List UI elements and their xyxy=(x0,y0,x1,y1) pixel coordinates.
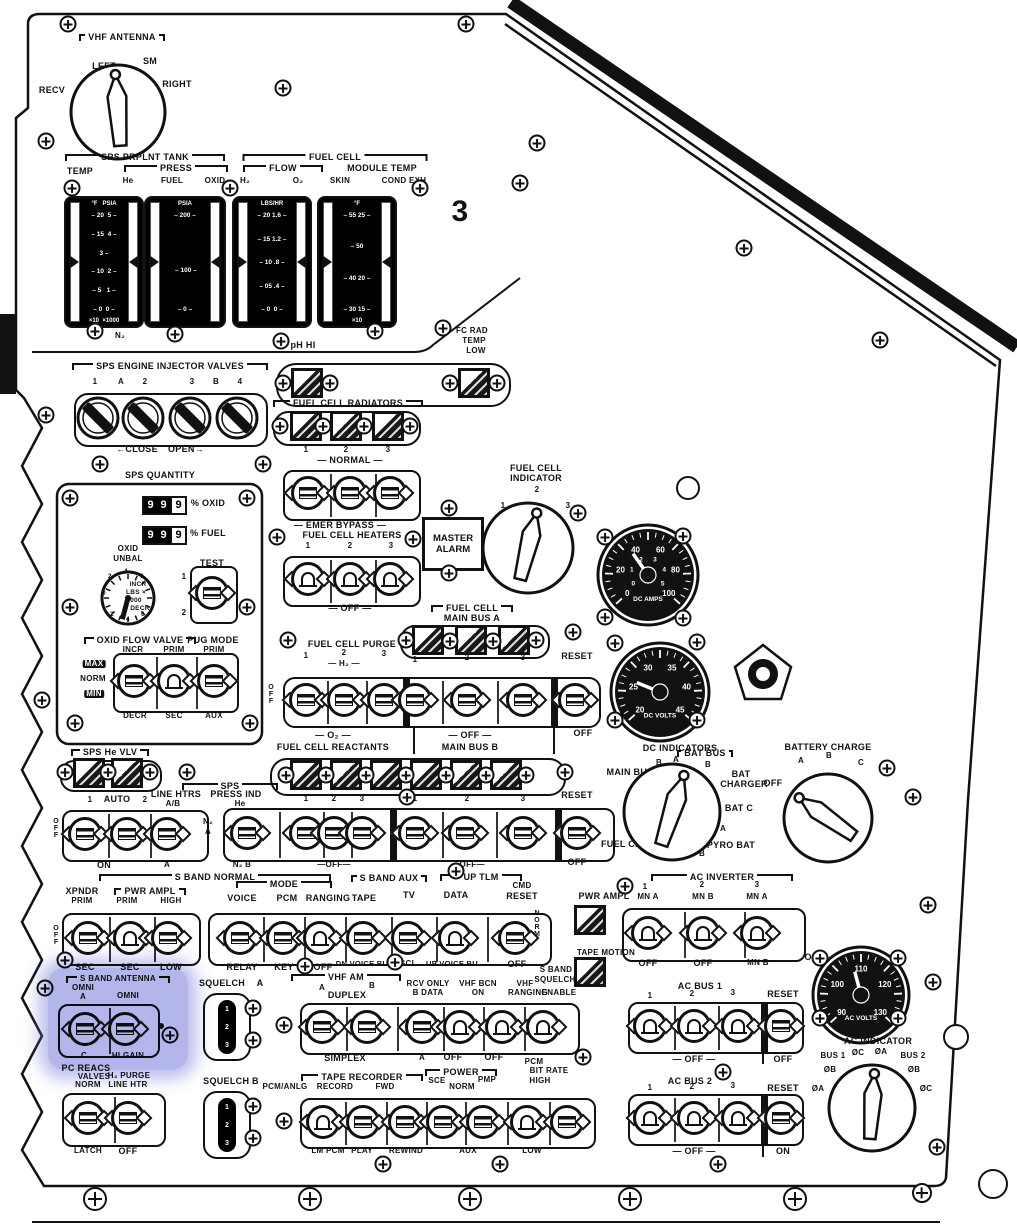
switch-lever xyxy=(458,694,476,706)
label: —OFF— xyxy=(317,861,351,869)
fc-htr-off-1[interactable] xyxy=(291,562,325,596)
screw-icon xyxy=(162,1027,179,1044)
sps-auto-2-switch[interactable] xyxy=(110,817,144,851)
label: 3 xyxy=(755,881,760,889)
pcm-bit-rate[interactable] xyxy=(510,1105,544,1139)
oxid-flow-prim-sec[interactable] xyxy=(157,664,191,698)
screw-icon xyxy=(239,490,256,507)
screw-icon xyxy=(570,505,587,522)
press-ind-reset[interactable] xyxy=(560,816,594,850)
vhf-ranging[interactable] xyxy=(485,1010,519,1044)
switch-lever xyxy=(354,932,372,944)
switch-lever xyxy=(453,1020,467,1033)
meter-tick-label: 40 xyxy=(682,682,691,691)
label: ON xyxy=(97,861,111,870)
screw-icon xyxy=(675,610,692,627)
screw-icon xyxy=(617,878,634,895)
switch-lever xyxy=(125,675,143,687)
line-htrs-ab-switch[interactable] xyxy=(150,817,184,851)
ac-bus1-1[interactable] xyxy=(633,1009,667,1043)
ac-bus2-3[interactable] xyxy=(721,1101,755,1135)
screw-icon xyxy=(100,764,117,781)
press-ind-b1[interactable] xyxy=(398,816,432,850)
vhf-am-b[interactable] xyxy=(350,1010,384,1044)
fc-htr-norm-2[interactable] xyxy=(333,476,367,510)
switch-lever xyxy=(119,1112,137,1124)
screw-icon xyxy=(297,958,314,975)
label: 1 xyxy=(304,652,309,660)
screw-icon xyxy=(405,531,422,548)
screw-icon xyxy=(398,767,415,784)
fuel-cell-indicator-selector[interactable] xyxy=(477,497,579,599)
switch-lever xyxy=(159,932,177,944)
screw-icon xyxy=(812,950,829,967)
label: — O₂ — xyxy=(315,731,351,740)
label: RESET xyxy=(561,791,593,800)
readout-digit: 9 xyxy=(144,528,157,543)
label: PMP xyxy=(478,1076,496,1084)
label: SKIN xyxy=(330,177,350,185)
ac-inv-3[interactable] xyxy=(740,916,774,950)
tape-scale: – 20 5 –– 15 4 –3 –– 10 2 –– 5 1 –– 0 0 … xyxy=(81,212,127,313)
screw-icon xyxy=(38,407,55,424)
s-band-antenna-a-c[interactable] xyxy=(68,1012,102,1046)
switch-lever xyxy=(381,487,399,499)
screw-icon xyxy=(618,1187,642,1211)
screw-icon xyxy=(57,952,74,969)
screw-icon xyxy=(67,715,84,732)
pwr-ampl-high-low[interactable] xyxy=(151,921,185,955)
label: 2 xyxy=(700,881,705,889)
screw-icon xyxy=(245,1032,262,1049)
label: 2 xyxy=(348,542,353,550)
meter-tick-label: 45 xyxy=(676,706,685,715)
label: BIT RATE xyxy=(530,1067,569,1075)
tape-scale-row: – 55 25 – xyxy=(334,212,380,219)
main-bus-a-1-talkback xyxy=(412,625,444,655)
screw-icon xyxy=(315,418,332,435)
tape-pointer xyxy=(322,255,339,269)
label: SEC xyxy=(120,963,139,972)
label: 6 xyxy=(141,612,145,619)
power-sce[interactable] xyxy=(426,1105,460,1139)
label: PRIM xyxy=(71,897,92,905)
label: 2 xyxy=(342,649,347,657)
switch-lever xyxy=(274,932,292,944)
label: S BAND xyxy=(540,966,572,974)
label: A xyxy=(118,378,124,386)
label: C xyxy=(81,1052,87,1060)
screw-icon xyxy=(402,418,419,435)
label: 2 xyxy=(690,990,695,998)
label: MN B xyxy=(747,959,769,967)
screw-icon xyxy=(34,692,51,709)
switch-lever xyxy=(203,587,221,599)
screw-icon xyxy=(890,1010,907,1027)
mode-ranging[interactable] xyxy=(303,921,337,955)
press-ind-b3[interactable] xyxy=(506,816,540,850)
switch-lever xyxy=(643,1111,657,1124)
label: 3 xyxy=(360,795,365,803)
quantity-test-switch[interactable] xyxy=(195,576,229,610)
screw-icon xyxy=(276,1017,293,1034)
switch-lever xyxy=(343,572,357,585)
screw-icon xyxy=(812,1010,829,1027)
screw-icon xyxy=(458,1187,482,1211)
screw-icon xyxy=(442,375,459,392)
label: 1 xyxy=(643,883,648,891)
up-tlm-data[interactable] xyxy=(438,921,472,955)
vhf-antenna-title: VHF ANTENNA xyxy=(79,33,165,42)
label: MODULE TEMP xyxy=(347,164,417,173)
h2-purge-line-htr[interactable] xyxy=(111,1101,145,1135)
readout-digit: 9 xyxy=(157,498,170,513)
label: RESET xyxy=(506,892,538,901)
dc-volts-meter: 202530354045DC VOLTS xyxy=(607,639,713,745)
screw-icon xyxy=(399,789,416,806)
tape-scale: – 55 25 –– 50– 40 20 –– 30 15 – xyxy=(334,212,380,313)
fc-purge-2[interactable] xyxy=(327,683,361,717)
tape-scale-row: – 5 1 – xyxy=(81,287,127,294)
label: 3 xyxy=(521,795,526,803)
label: 1 xyxy=(648,992,653,1000)
fuel-cell-module-temp-meter: °F– 55 25 –– 50– 40 20 –– 30 15 –×10 xyxy=(317,196,397,328)
switch-lever xyxy=(299,487,317,499)
tape-scale-row: 3 – xyxy=(81,250,127,257)
thumbwheel-drum: 123 xyxy=(218,1000,236,1054)
label: 2 xyxy=(143,378,148,386)
screw-icon xyxy=(276,1113,293,1130)
label: MAIN BUS B xyxy=(442,743,499,752)
label: 2 xyxy=(465,654,470,662)
label: NORM xyxy=(80,675,106,683)
ph-hi-talkback xyxy=(291,368,323,398)
fuel-cell-flow-meter: LBS/HR– 20 1.6 –– 15 1.2 –– 10 .8 –– 05 … xyxy=(232,196,312,328)
screw-icon xyxy=(879,760,896,777)
meter-tick-label: 100 xyxy=(831,980,845,989)
screw-icon xyxy=(715,1064,732,1081)
meter-tick-label: 60 xyxy=(656,545,665,554)
meter-inner-tick: 4 xyxy=(662,567,666,574)
label: 6 xyxy=(140,574,144,581)
sps-quantity-title: SPS QUANTITY xyxy=(125,471,195,480)
tape-pointer xyxy=(290,255,307,269)
sps-injector-title: SPS ENGINE INJECTOR VALVES xyxy=(72,362,268,371)
screw-icon xyxy=(367,323,384,340)
label: TAPE xyxy=(352,894,377,903)
injector-valve-2[interactable] xyxy=(120,395,166,441)
label: 1 xyxy=(93,378,98,386)
main-bus-b-3[interactable] xyxy=(506,683,540,717)
switch-lever xyxy=(448,931,462,944)
battery-charge-selector[interactable] xyxy=(778,768,878,868)
fc-purge-1[interactable] xyxy=(289,683,323,717)
label: MN A xyxy=(637,893,658,901)
screw-icon xyxy=(239,599,256,616)
press-ind-3[interactable] xyxy=(345,816,379,850)
oxid-flow-incr-decr[interactable] xyxy=(117,664,151,698)
tape-scale-row: – 40 20 – xyxy=(334,275,380,282)
main-bus-b-reset[interactable] xyxy=(558,683,592,717)
tape-scale-unit: LBS/HR xyxy=(248,201,296,207)
switch-lever xyxy=(297,694,315,706)
pwr-ampl-prim-sec[interactable] xyxy=(113,921,147,955)
screw-icon xyxy=(441,565,458,582)
label: TEMP xyxy=(67,167,93,176)
screw-icon xyxy=(387,954,404,971)
tape-pointer xyxy=(204,255,221,269)
screw-icon xyxy=(83,1187,107,1211)
switch-lever xyxy=(495,1020,509,1033)
label: DECR xyxy=(130,606,150,613)
screw-icon xyxy=(272,418,289,435)
switch-lever xyxy=(231,932,249,944)
tape-scale-row: – 50 xyxy=(334,243,380,250)
aux-tv[interactable] xyxy=(391,921,425,955)
ac-bus2-reset[interactable] xyxy=(764,1101,798,1135)
main-bus-b-2[interactable] xyxy=(450,683,484,717)
tape-scale-row: – 20 1.6 – xyxy=(249,212,295,219)
label: 3 xyxy=(731,989,736,997)
label: RECORD xyxy=(317,1083,353,1091)
screw-icon xyxy=(912,1183,932,1203)
readout-digit: 9 xyxy=(144,498,157,513)
tape-fwd[interactable] xyxy=(388,1105,422,1139)
pc-reacs-valves[interactable] xyxy=(71,1101,105,1135)
tape-pointer xyxy=(69,255,86,269)
fuel-quantity-readout: 999 xyxy=(142,526,187,545)
thumbwheel-digit: 3 xyxy=(225,1042,229,1049)
label: SEC xyxy=(165,712,182,720)
main-bus-b-1[interactable] xyxy=(398,683,432,717)
button-label: ALARM xyxy=(436,544,470,555)
label: FWD xyxy=(375,1083,394,1091)
label: 2 xyxy=(332,795,337,803)
injector-valve-4[interactable] xyxy=(214,395,260,441)
meter-tick-label: 30 xyxy=(644,663,653,672)
label: LOW xyxy=(160,963,182,972)
screw-icon xyxy=(736,240,753,257)
screw-icon xyxy=(222,180,239,197)
screw-icon xyxy=(492,1156,509,1173)
s-band-squelch[interactable] xyxy=(526,1010,560,1044)
meter-inner-tick: 0 xyxy=(631,581,635,588)
press-ind-b2[interactable] xyxy=(448,816,482,850)
switch-lever xyxy=(406,694,424,706)
screw-icon xyxy=(485,633,502,650)
label: HIGH xyxy=(160,897,181,905)
switch-lever xyxy=(566,694,584,706)
label: MAX xyxy=(83,660,106,668)
tape-scale: – 200 – – 100 –– 0 – xyxy=(161,212,209,313)
label: PRIM xyxy=(116,897,137,905)
tape-scale-multiplier: ×10 ×1000 xyxy=(80,318,128,324)
switch-lever xyxy=(335,694,353,706)
vhf-am-a[interactable] xyxy=(305,1010,339,1044)
controls-layer: VHF ANTENNALEFTSMRIGHTRECVSPS PRPLNT TAN… xyxy=(0,0,1017,1227)
ph-hi-label: pH HI xyxy=(291,341,316,350)
up-tlm-cmd-reset[interactable] xyxy=(498,921,532,955)
tape-pcm-anlg[interactable] xyxy=(306,1105,340,1139)
cell-divider xyxy=(279,812,281,858)
ac-inverter-title: AC INVERTER xyxy=(651,873,793,882)
tape-scale-row: – 15 1.2 – xyxy=(249,236,295,243)
tape-scale-row: – 200 – xyxy=(161,212,209,219)
ac-indicator-title: AC INDICATOR xyxy=(844,1037,912,1046)
tape-scale-row: – 10 .8 – xyxy=(249,259,295,266)
label: ØC xyxy=(920,1085,933,1093)
label: 2 xyxy=(690,1083,695,1091)
screw-icon xyxy=(565,624,582,641)
ac-inv-1[interactable] xyxy=(631,916,665,950)
xpndr-prim-sec[interactable] xyxy=(71,921,105,955)
fc-htr-off-3[interactable] xyxy=(373,562,407,596)
vhf-bcn[interactable] xyxy=(443,1010,477,1044)
screw-icon xyxy=(245,1130,262,1147)
switch-lever xyxy=(687,1019,701,1032)
thumbwheel-drum: 123 xyxy=(218,1098,236,1152)
aux-tape[interactable] xyxy=(346,921,380,955)
label: PCM/ANLG xyxy=(262,1083,307,1091)
screw-icon xyxy=(245,1098,262,1115)
label: 1 xyxy=(413,656,418,664)
screw-icon xyxy=(412,180,429,197)
label: SPS He VLV xyxy=(71,748,149,757)
s-band-antenna-omni-higain[interactable] xyxy=(108,1012,142,1046)
switch-lever xyxy=(696,926,710,939)
ac-indicator-selector[interactable] xyxy=(823,1059,921,1157)
injector-valve-3[interactable] xyxy=(167,395,213,441)
divider-line xyxy=(762,1048,764,1064)
screw-icon xyxy=(872,332,889,349)
label: N₂ B xyxy=(233,861,252,869)
label: N₂ xyxy=(203,818,213,826)
label: INCR xyxy=(123,646,144,654)
label: A xyxy=(257,979,264,988)
switch-lever xyxy=(687,1111,701,1124)
switch-lever xyxy=(353,827,371,839)
label: AUX xyxy=(459,1147,477,1155)
ac-bus1-2[interactable] xyxy=(677,1009,711,1043)
fc-htr-norm-1[interactable] xyxy=(291,476,325,510)
label: B DATA xyxy=(413,989,444,997)
label: A xyxy=(80,993,86,1001)
screw-icon xyxy=(518,767,535,784)
ac-inv-2[interactable] xyxy=(686,916,720,950)
meter-inner-tick: 3 xyxy=(653,556,657,563)
label: — OFF — xyxy=(672,1055,715,1064)
squelch-a-thumbwheel[interactable]: 123 xyxy=(203,993,251,1061)
label: VOICE xyxy=(227,894,257,903)
screw-icon xyxy=(275,80,292,97)
label: FC RAD xyxy=(456,327,488,335)
tape-scale-row: – 0 – xyxy=(161,306,209,313)
pug-mode-switch[interactable] xyxy=(197,664,231,698)
label: TEMP xyxy=(462,337,485,345)
switch-lever xyxy=(536,1020,550,1033)
label: PRESS xyxy=(124,164,228,173)
screw-icon xyxy=(64,180,81,197)
label: HI GAIN xyxy=(112,1052,144,1060)
master-alarm-button[interactable]: MASTERALARM xyxy=(422,517,484,571)
label: H₂ xyxy=(240,177,250,185)
label: DUPLEX xyxy=(328,991,366,1000)
mode-voice[interactable] xyxy=(223,921,257,955)
ac-bus1-3[interactable] xyxy=(721,1009,755,1043)
label: FUEL CELL RADIATORS xyxy=(273,399,423,408)
label: SEC xyxy=(75,963,94,972)
label: 2 xyxy=(143,796,148,804)
switch-lever xyxy=(520,1115,534,1128)
fuel-cell-title: FUEL CELL xyxy=(243,153,428,162)
vhf-antenna-selector[interactable] xyxy=(65,59,171,165)
screw-icon xyxy=(929,1139,946,1156)
meter-tick-label: 40 xyxy=(631,545,640,554)
label: DECR xyxy=(123,712,147,720)
screw-icon xyxy=(87,323,104,340)
fc-htr-off-2[interactable] xyxy=(333,562,367,596)
screw-icon xyxy=(442,633,459,650)
switch-lever xyxy=(772,1112,790,1124)
label: MODE xyxy=(236,880,332,889)
fc-rad-3-talkback xyxy=(372,411,404,441)
tape-aux[interactable] xyxy=(550,1105,584,1139)
label: 3 xyxy=(386,446,391,454)
label: 2 xyxy=(344,446,349,454)
switch-lever xyxy=(79,1112,97,1124)
meter-inner-tick: 5 xyxy=(661,581,665,588)
label: OFF xyxy=(268,684,275,705)
ac-bus2-2[interactable] xyxy=(677,1101,711,1135)
vhf-rcv-only[interactable] xyxy=(405,1010,439,1044)
fc-htr-norm-3[interactable] xyxy=(373,476,407,510)
label: UP VOICE BU xyxy=(426,960,478,968)
screw-icon xyxy=(179,764,196,781)
switch-lever xyxy=(399,932,417,944)
main-bus-a-2-talkback xyxy=(455,625,487,655)
button-label: MASTER xyxy=(433,533,473,544)
label: % OXID xyxy=(191,499,225,508)
label: LM PCM xyxy=(311,1147,344,1155)
dc-indicators-selector[interactable] xyxy=(618,758,726,866)
ac-bus2-1[interactable] xyxy=(633,1101,667,1135)
tape-motion-talkback xyxy=(574,957,606,987)
switch-lever xyxy=(76,828,94,840)
meter-label: DC AMPS xyxy=(633,596,663,603)
tape-scale-row: – 100 – xyxy=(161,267,209,274)
screw-icon xyxy=(528,632,545,649)
label: INDICATOR xyxy=(510,474,562,483)
label: RANGING xyxy=(508,989,548,997)
label: A xyxy=(419,1054,425,1062)
label: 3 xyxy=(521,654,526,662)
screw-icon xyxy=(441,500,458,517)
power-pmp[interactable] xyxy=(466,1105,500,1139)
tape-scale-row: – 0 0 – xyxy=(81,306,127,313)
squelch-b-thumbwheel[interactable]: 123 xyxy=(203,1091,251,1159)
tape-record[interactable] xyxy=(346,1105,380,1139)
press-ind-he-switch[interactable] xyxy=(230,816,264,850)
label: LOW xyxy=(466,347,486,355)
sps-auto-1-switch[interactable] xyxy=(68,817,102,851)
label: AC BUS 1 xyxy=(678,982,722,991)
label: 2 xyxy=(108,574,112,581)
injector-valve-1[interactable] xyxy=(75,395,121,441)
meter-tick-label: 120 xyxy=(878,980,892,989)
label: 0 xyxy=(102,591,106,598)
ac-bus1-reset[interactable] xyxy=(764,1009,798,1043)
label: — OFF — xyxy=(448,731,491,740)
